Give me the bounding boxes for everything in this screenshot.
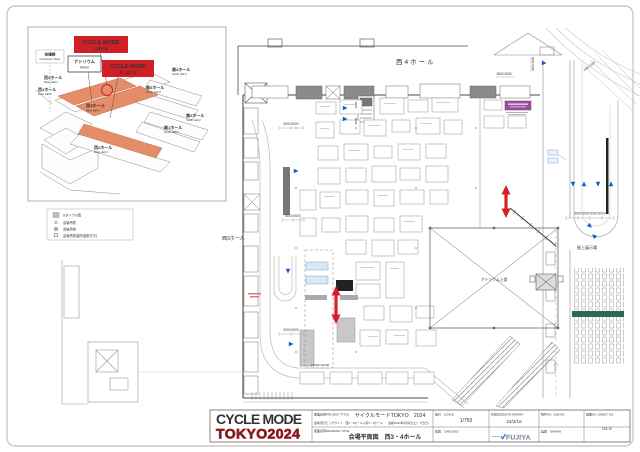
dim-3000-vertical: 3000 3000: [531, 57, 535, 72]
atrium-roof: [494, 33, 562, 55]
drawn-label-jp: 製図: [541, 429, 547, 434]
hatched-box: [336, 280, 353, 291]
badge-west-hall: CYCLE MODE 西展示棟: [74, 36, 128, 53]
fujiya-text: FUJIYA: [506, 435, 531, 442]
sheet-value: 01-3: [602, 426, 612, 431]
badge-roof-line1: CYCLE MODE: [110, 64, 146, 70]
bottom-left-structures: [62, 260, 243, 404]
label-south3-jp: 南3ホール: [146, 84, 164, 90]
label-west1-en: West Hall 1: [38, 92, 52, 96]
checked-label-jp: 検図: [435, 429, 441, 434]
label-west3-jp: 西3ホール: [44, 74, 62, 80]
scale-label-en: SCALE: [444, 413, 454, 417]
rooftop-label: 屋上展示場: [577, 244, 597, 250]
red-flow-arrows: [332, 185, 511, 324]
drawn-label-en: DRAWN: [550, 430, 561, 434]
legend-item2: 会場吊物: [63, 220, 77, 225]
job-label-en: JOB NO.: [553, 413, 565, 417]
dim-5000-top: 5000 5000: [283, 122, 298, 126]
label-west4-en: West Hall 4: [86, 109, 100, 113]
date-label-jp: 作成日付: [491, 412, 503, 417]
drawing-label-jp: 図面名称: [314, 428, 326, 433]
label-west2-jp: 西2ホール: [94, 144, 112, 150]
left-booth-column: [244, 108, 260, 394]
ramp-stripes: [452, 336, 560, 408]
legend-item3: 会場吊物: [63, 227, 77, 232]
atrium-upper-label: アトリウム上部: [481, 277, 508, 282]
cyclemode-logo: CYCLE MODE TOKYO2024: [216, 411, 302, 442]
dim-5000-vertical: 5000: [354, 117, 358, 124]
job-label-jp: 物件NO.: [541, 412, 553, 417]
dim-5500-row: 5500 5500 5500 8000: [574, 212, 605, 216]
label-south4-en: South Hall 4: [172, 72, 187, 76]
drawing-sheet: 会議棟 Conference Tower アトリウム Atrium CYCLE …: [0, 0, 640, 452]
drawing-value: 会場平面図 西3・4ホール: [349, 433, 422, 441]
top-booth-row: [252, 84, 530, 99]
atrium-en: Atrium: [80, 66, 90, 70]
legend: Sタイプ小間 会場吊物 会場吊物 会場吊物(操作盤取付き): [47, 209, 133, 240]
project-label-jp: 事業名称: [314, 412, 326, 417]
label-south1-en: South Hall 1: [164, 130, 179, 134]
label-south1-jp: 南1ホール: [164, 124, 182, 130]
hall-west4-label: 西4ホール: [396, 58, 436, 66]
sheet-label-jp: 図面NO.: [586, 413, 598, 417]
dim-6000: 6000 6000: [285, 214, 300, 218]
booth-grid: [300, 98, 526, 384]
dim-3000-diagonal: 3000 3000: [583, 60, 597, 72]
dark-wall-bar: [283, 167, 290, 215]
badge-rooftop: CYCLE MODE 屋上展示場: [102, 60, 154, 77]
project-label-en: PROJECT TITLE: [326, 413, 349, 417]
legend-item4: 会場吊物(操作盤取付き): [63, 233, 97, 238]
date-label-en: DATE DRAWN: [503, 413, 523, 417]
screen-bar-left: [305, 295, 327, 300]
label-west3-en: West Hall 3: [44, 80, 58, 84]
badge-roof-line2: 屋上展示場: [120, 70, 138, 75]
label-south2-jp: 南2ホール: [186, 112, 204, 118]
inset-map: 会議棟 Conference Tower アトリウム Atrium CYCLE …: [28, 27, 226, 201]
purple-booth: [505, 101, 531, 115]
label-south2-en: South Hall 2: [186, 118, 201, 122]
bike-parking-grid: [572, 268, 624, 364]
rooftop-course: [546, 28, 640, 237]
conference-label: 会議棟 Conference Tower: [36, 50, 64, 63]
scale-value: 1/750: [460, 418, 473, 424]
legend-item1: Sタイプ小間: [63, 213, 81, 218]
label-south4-jp: 南4ホール: [172, 66, 190, 72]
checked-label-en: CHECKED: [444, 430, 460, 434]
conference-en: Conference Tower: [39, 57, 60, 61]
atrium-label: アトリウム Atrium: [68, 56, 101, 72]
badge-west-line1: CYCLE MODE: [82, 40, 120, 46]
logo-line2: TOKYO2024: [216, 426, 300, 442]
sheet-label-en: SHEET NO.: [598, 413, 614, 417]
dim-4000-vertical: 4000: [354, 101, 358, 108]
label-west4-jp: 西4ホール: [86, 102, 106, 109]
title-block: CYCLE MODE TOKYO2024 事業名称 PROJECT TITLE …: [210, 410, 630, 442]
red-arrow-right: [502, 185, 511, 218]
teal-row: [572, 311, 624, 317]
conference-jp: 会議棟: [44, 52, 56, 57]
date-value: 24/2/16: [506, 419, 522, 424]
screen-bar-right: [340, 295, 358, 300]
legend-swatch-booth: [53, 213, 59, 218]
badge-west-line2: 西展示棟: [94, 46, 108, 51]
project-value: サイクルモードTOKYO 2024: [355, 412, 426, 419]
label-west1-jp: 西1ホール: [38, 86, 56, 92]
dim-5000-bottom: 5000 5000: [283, 328, 298, 332]
atrium-jp: アトリウム: [74, 58, 95, 65]
label-west2-en: West Hall 2: [94, 150, 108, 154]
event-area-dim: 12000×30000: [311, 363, 330, 367]
venue-line: 会場/東京ビッグサイト 西3・4ホール＋南3・4ホール 会期/2024年4月6日…: [314, 421, 429, 425]
scale-label-jp: 縮尺: [435, 412, 441, 417]
drawing-label-en: DRAWING TITLE: [326, 429, 349, 433]
dim-3600: 3600 3600: [496, 72, 511, 76]
label-south3-en: South Hall 3: [146, 90, 161, 94]
hall-west3-label: 西3ホール: [222, 236, 245, 242]
